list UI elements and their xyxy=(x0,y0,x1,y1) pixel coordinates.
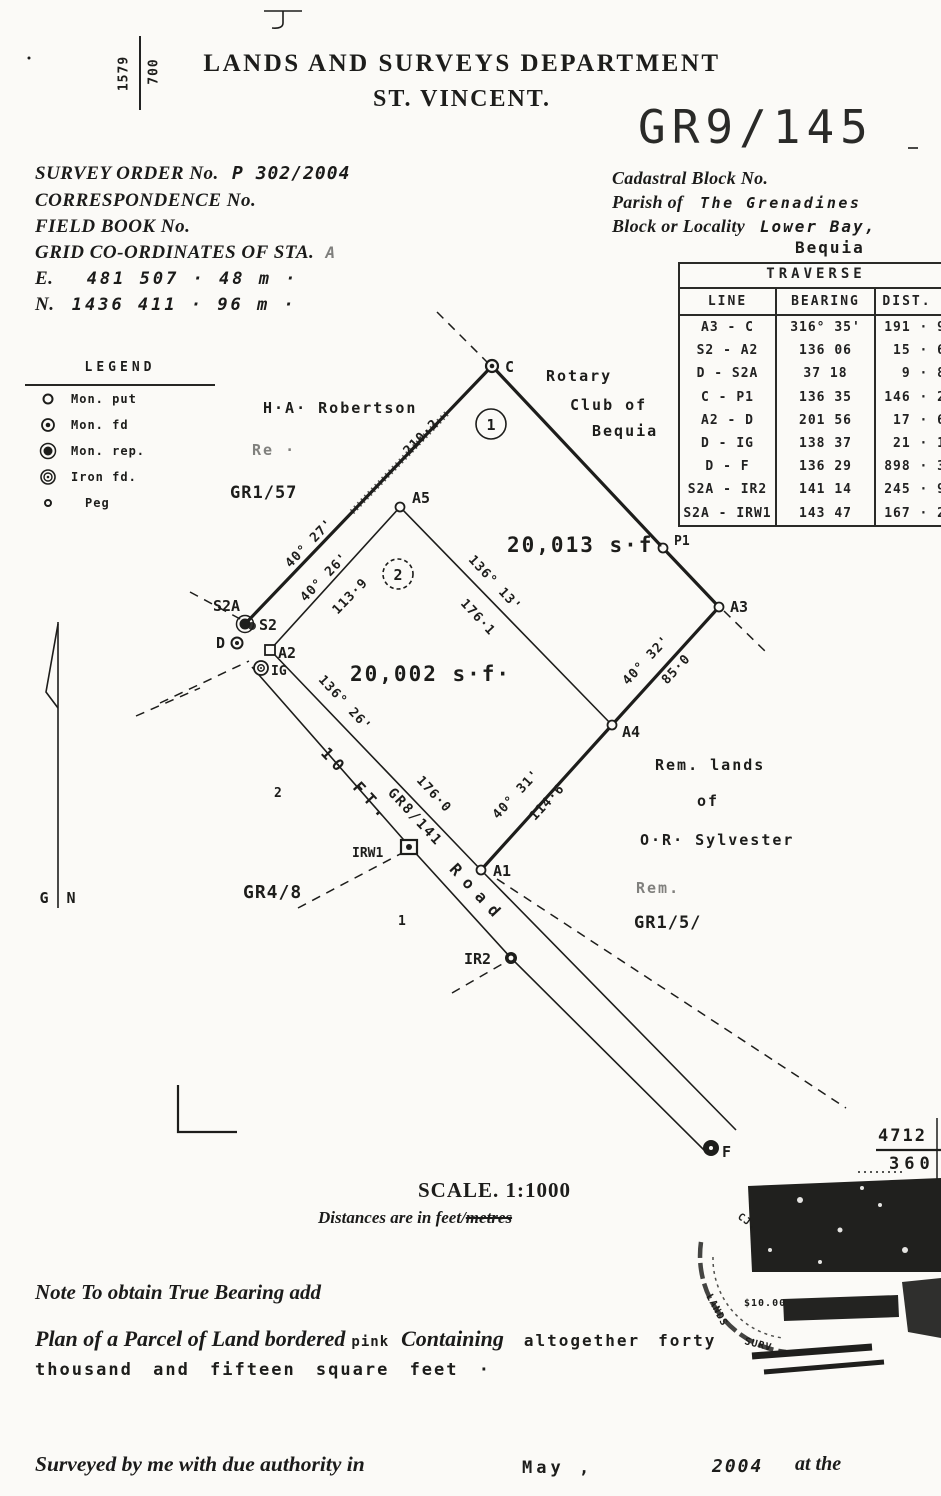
boundary-s2a-c xyxy=(245,366,492,624)
monument-a1 xyxy=(477,866,486,875)
cell-dist: 191 · 9 xyxy=(876,320,941,335)
northing-label: N. xyxy=(35,294,54,315)
northing-value: 1436 411 · 96 m · xyxy=(72,295,297,315)
margin-divider xyxy=(139,36,141,110)
dim-a1-a4-bearing: 40° 31' xyxy=(490,767,543,822)
monument-a5 xyxy=(396,503,405,512)
dim-a5-a4-bearing: 136° 13' xyxy=(465,553,524,615)
description-part-3: altogether xyxy=(524,1331,640,1350)
adjoiner-sylvester-1: Rem. lands xyxy=(655,756,765,774)
cell-bearing: 37 18 xyxy=(777,362,876,385)
cell-line: S2A - IRW1 xyxy=(680,502,777,525)
traverse-row: A2 - D 201 56 17 · 6 xyxy=(680,409,941,432)
legend-item: Peg xyxy=(25,490,215,516)
peg-icon xyxy=(25,494,71,512)
stamp-fee: $10.00 xyxy=(744,1298,786,1309)
legend-item: Mon. fd xyxy=(25,412,215,438)
mon-fd-icon xyxy=(25,416,71,434)
stamp-bar xyxy=(783,1295,899,1321)
adjoiner-robertson-ref: GR1/57 xyxy=(230,483,297,503)
surveyed-suffix: at the xyxy=(795,1453,841,1476)
block-locality-value: Lower Bay, xyxy=(760,217,876,236)
mon-rep-icon xyxy=(25,442,71,460)
legend-label: Mon. rep. xyxy=(71,444,145,458)
grid-coords-line: GRID CO-ORDINATES OF STA. A xyxy=(35,242,336,264)
cell-line: D - F xyxy=(680,455,777,478)
cell-line: C - P1 xyxy=(680,386,777,409)
margin-fraction-numerator: 4712 xyxy=(878,1126,927,1146)
traverse-row: D - IG 138 37 21 · 1 xyxy=(680,432,941,455)
dim-road-dist: 176·0 xyxy=(413,773,454,816)
monument-c xyxy=(486,360,498,372)
dim-s2a-c-bearing: 40° 27' xyxy=(283,516,337,571)
distance-units-note: Distances are in feet/metres xyxy=(318,1208,512,1228)
block-locality-line: Block or Locality Lower Bay, xyxy=(612,216,876,237)
road-edge-ne xyxy=(272,652,736,1130)
traverse-row: S2A - IR2 141 14 245 · 9 xyxy=(680,478,941,501)
stamp-blob xyxy=(902,1278,941,1338)
road-extension-2 xyxy=(136,688,200,716)
extension-beyond-a3 xyxy=(724,611,768,654)
legend-label: Iron fd. xyxy=(71,470,137,484)
legend-label: Mon. put xyxy=(71,392,137,406)
cadastral-block-label: Cadastral Block No. xyxy=(612,168,768,189)
stamp-arc-inner xyxy=(713,1257,783,1338)
border-color-word: pink xyxy=(351,1334,389,1350)
point-label-ir2: IR2 xyxy=(464,950,491,968)
legend-title: LEGEND xyxy=(25,355,215,386)
legend-label: Mon. fd xyxy=(71,418,129,432)
cell-bearing: 136 29 xyxy=(777,455,876,478)
adjoiner-rotary-3: Bequia xyxy=(592,422,658,440)
point-label-a4: A4 xyxy=(622,723,640,741)
adjoiner-robertson: H·A· Robertson xyxy=(263,399,417,417)
cell-bearing: 136 06 xyxy=(777,339,876,362)
cell-line: D - IG xyxy=(680,432,777,455)
extension-ir2 xyxy=(452,963,504,993)
adjoiner-robertson-rem: Re · xyxy=(252,441,296,459)
plan-number: GR9/145 xyxy=(638,100,874,154)
point-label-a5: A5 xyxy=(412,489,430,507)
road-name-part-2: Road xyxy=(446,860,511,927)
cell-dist: 898 · 3 xyxy=(876,459,941,474)
surveyed-year: 2004 xyxy=(712,1456,763,1477)
legend-box: LEGEND Mon. put Mon. fd Mon. rep. Iron f… xyxy=(25,355,215,518)
dim-a1-a4-dist: 114·6 xyxy=(527,781,568,824)
stamp-text-3: SURV xyxy=(743,1336,773,1353)
col-dist: DIST. xyxy=(876,294,941,309)
cell-bearing: 143 47 xyxy=(777,502,876,525)
stamp-smear-1 xyxy=(752,1347,872,1356)
lot-mark-1: 1 xyxy=(398,914,406,929)
margin-number-bottom: 700 xyxy=(147,52,162,92)
adjoiner-sylvester-3: O·R· Sylvester xyxy=(640,831,794,849)
legend-item: Mon. rep. xyxy=(25,438,215,464)
cell-dist: 15 · 6 xyxy=(876,343,941,358)
cell-bearing: 141 14 xyxy=(777,478,876,501)
cell-dist: 17 · 6 xyxy=(876,413,941,428)
dim-a2-a5-bearing: 40° 26' xyxy=(298,550,352,605)
road-extension-1 xyxy=(160,661,249,703)
surveyed-prefix: Surveyed by me with due authority in xyxy=(35,1452,365,1477)
surveyed-month: May , xyxy=(522,1458,593,1478)
point-label-a2: A2 xyxy=(278,644,296,662)
cell-bearing: 201 56 xyxy=(777,409,876,432)
cell-line: A2 - D xyxy=(680,409,777,432)
cell-dist: 9 · 8 xyxy=(876,366,941,381)
point-label-irw1: IRW1 xyxy=(352,846,383,861)
parcel-1-circle xyxy=(476,409,506,439)
adjoiner-rotary-1: Rotary xyxy=(546,367,612,385)
point-label-d: D xyxy=(216,634,225,652)
true-bearing-note: Note To obtain True Bearing add xyxy=(35,1280,321,1305)
point-label-a1: A1 xyxy=(493,862,511,880)
dim-a2-a5-dist: 113·9 xyxy=(330,575,371,617)
easting-label: E. xyxy=(35,268,53,289)
parish-label: Parish of xyxy=(612,192,683,212)
road-name-part-1: 10 FT. xyxy=(317,743,395,825)
block-locality-value-2: Bequia xyxy=(795,238,865,257)
survey-order-line: SURVEY ORDER No. P 302/2004 xyxy=(35,163,350,185)
point-label-f: F xyxy=(722,1143,731,1161)
point-label-p1: P1 xyxy=(674,534,690,549)
parcel-1-area: 20,013 s·f· xyxy=(507,533,668,557)
survey-plan-sheet: 1579 700 LANDS AND SURVEYS DEPARTMENT ST… xyxy=(0,0,941,1496)
lot-mark-2: 2 xyxy=(274,786,282,801)
adjoiner-gr48-ref: GR4/8 xyxy=(243,882,302,903)
cell-dist: 167 · 2 xyxy=(876,506,941,521)
stamp-smear-2 xyxy=(764,1362,884,1372)
traverse-row: S2 - A2 136 06 15 · 6 xyxy=(680,339,941,362)
col-line: LINE xyxy=(680,289,777,314)
dim-a5-a4-dist: 176·1 xyxy=(457,596,498,639)
traverse-row: C - P1 136 35 146 · 2 xyxy=(680,386,941,409)
monument-ir2 xyxy=(505,952,517,964)
boundary-a3-a4 xyxy=(612,607,719,725)
north-arrow-head xyxy=(46,624,58,708)
traverse-table-header: LINE BEARING DIST. xyxy=(680,289,941,316)
description-part-2: Containing xyxy=(401,1326,504,1351)
adjoiner-rotary-2: Club of xyxy=(570,396,647,414)
legend-item: Iron fd. xyxy=(25,464,215,490)
parcel-2-area: 20,002 s·f· xyxy=(350,662,511,686)
point-label-a3: A3 xyxy=(730,598,748,616)
legend-item: Mon. put xyxy=(25,386,215,412)
adjoiner-rem-south-ref: GR1/5/ xyxy=(634,913,701,933)
stamp-text-2: LANDS xyxy=(703,1292,729,1328)
dim-a4-a3-bearing: 40° 32' xyxy=(620,633,673,688)
boundary-hatch xyxy=(352,413,447,512)
northing-line: N. 1436 411 · 96 m · xyxy=(35,294,297,316)
grid-north-label-n: N xyxy=(66,889,75,907)
cell-line: S2A - IR2 xyxy=(680,478,777,501)
extension-irw1 xyxy=(298,852,404,908)
cell-dist: 146 · 2 xyxy=(876,390,941,405)
point-label-s2a: S2A xyxy=(213,597,240,615)
adjoiner-sylvester-2: of xyxy=(697,792,719,810)
stamp-block xyxy=(748,1178,941,1272)
traverse-table-title: TRAVERSE xyxy=(680,264,941,289)
corner-mark xyxy=(178,1085,237,1132)
survey-order-value: P 302/2004 xyxy=(232,163,350,184)
units-struck: metres xyxy=(466,1208,512,1227)
dim-s2a-c-dist: 210·2 xyxy=(401,416,442,458)
monument-p1 xyxy=(659,544,668,553)
traverse-row: S2A - IRW1 143 47 167 · 2 xyxy=(680,502,941,525)
parish-value: The Grenadines xyxy=(700,194,861,212)
stamp-text-1: CJ. xyxy=(735,1211,759,1232)
extension-a1-se xyxy=(497,879,846,1108)
parcel-2-number: 2 xyxy=(393,566,402,584)
survey-order-label: SURVEY ORDER No. xyxy=(35,163,219,184)
units-prefix: Distances are in feet/ xyxy=(318,1208,466,1227)
boundary-p1-a3 xyxy=(663,548,719,607)
monument-ig xyxy=(254,661,268,675)
parcel-2-circle xyxy=(383,559,413,589)
boundary-a2-a5 xyxy=(270,507,400,650)
scale-label: SCALE. 1:1000 xyxy=(418,1178,571,1203)
extension-beyond-s2a xyxy=(190,592,242,620)
boundary-a4-a1 xyxy=(481,725,612,870)
cell-bearing: 316° 35' xyxy=(777,316,876,339)
margin-number-top: 1579 xyxy=(117,50,132,98)
boundary-a5-a4 xyxy=(400,507,612,725)
traverse-table: TRAVERSE LINE BEARING DIST. A3 - C 316° … xyxy=(678,262,941,527)
col-bearing: BEARING xyxy=(777,289,876,314)
point-label-c: C xyxy=(505,358,514,376)
cell-dist: 245 · 9 xyxy=(876,482,941,497)
easting-line: E. 481 507 · 48 m · xyxy=(35,268,298,290)
cell-dist: 21 · 1 xyxy=(876,436,941,451)
ink-dot xyxy=(28,57,31,60)
mon-put-icon xyxy=(25,390,71,408)
point-label-ig: IG xyxy=(271,664,287,679)
cell-line: S2 - A2 xyxy=(680,339,777,362)
field-book-label: FIELD BOOK No. xyxy=(35,216,190,238)
monument-d xyxy=(232,638,243,649)
official-stamp: CJ. LANDS SURV $10.00 xyxy=(700,1178,941,1372)
traverse-row: A3 - C 316° 35' 191 · 9 xyxy=(680,316,941,339)
parish-line: Parish of The Grenadines xyxy=(612,192,861,213)
dim-a4-a3-dist: 85·0 xyxy=(659,652,694,688)
cell-bearing: 136 35 xyxy=(777,386,876,409)
point-label-s2: S2 xyxy=(259,616,277,634)
legend-label: Peg xyxy=(85,496,110,510)
north-arrow: G N xyxy=(39,622,75,908)
parcel-1-number: 1 xyxy=(486,416,495,434)
margin-fraction-denominator: 360 xyxy=(889,1154,935,1174)
monument-a2 xyxy=(265,645,275,655)
description-line-2: thousand and fifteen square feet · xyxy=(35,1360,491,1380)
correspondence-label: CORRESPONDENCE No. xyxy=(35,190,256,212)
description-part-4: forty xyxy=(658,1331,716,1350)
block-locality-label: Block or Locality xyxy=(612,216,745,236)
department-title: LANDS AND SURVEYS DEPARTMENT xyxy=(202,50,722,78)
monument-a3 xyxy=(715,603,724,612)
cell-line: A3 - C xyxy=(680,316,777,339)
registration-mark xyxy=(264,11,302,28)
easting-value: 481 507 · 48 m · xyxy=(87,269,299,289)
road-edge-sw xyxy=(252,667,706,1152)
cell-bearing: 138 37 xyxy=(777,432,876,455)
plan-description-line: Plan of a Parcel of Land bordered pink C… xyxy=(35,1326,716,1352)
extension-beyond-c xyxy=(437,312,488,363)
grid-station-value: A xyxy=(326,243,336,262)
description-part-1: Plan of a Parcel of Land bordered xyxy=(35,1326,345,1351)
traverse-row: D - F 136 29 898 · 3 xyxy=(680,455,941,478)
monument-s2 xyxy=(237,616,257,633)
iron-fd-icon xyxy=(25,468,71,486)
grid-coords-label: GRID CO-ORDINATES OF STA. xyxy=(35,242,314,263)
boundary-c-p1 xyxy=(492,366,663,548)
road-reference: GR8/141 xyxy=(384,785,445,849)
traverse-row: D - S2A 37 18 9 · 8 xyxy=(680,362,941,385)
monument-f xyxy=(703,1140,719,1156)
monument-a4 xyxy=(608,721,617,730)
dim-road-bearing: 136° 26' xyxy=(315,673,374,735)
cell-line: D - S2A xyxy=(680,362,777,385)
monument-irw1 xyxy=(401,840,417,854)
grid-north-label-g: G xyxy=(39,889,48,907)
adjoiner-rem-south: Rem. xyxy=(636,879,680,897)
